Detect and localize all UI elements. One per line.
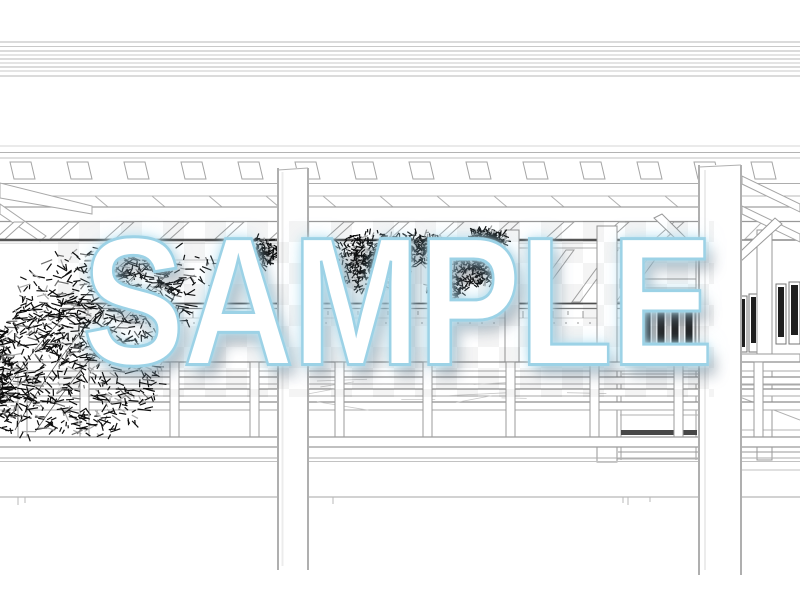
roof-board-lines bbox=[0, 42, 800, 146]
line-drawing bbox=[0, 0, 800, 600]
eave-structure bbox=[0, 153, 800, 244]
corridor-facade-bay bbox=[616, 248, 704, 460]
left-pillar bbox=[277, 168, 309, 570]
balustrade-railing bbox=[0, 362, 800, 462]
bamboo-grove bbox=[0, 241, 221, 441]
ground-base bbox=[0, 497, 800, 505]
stock-illustration-preview: SAMPLE bbox=[0, 0, 800, 600]
